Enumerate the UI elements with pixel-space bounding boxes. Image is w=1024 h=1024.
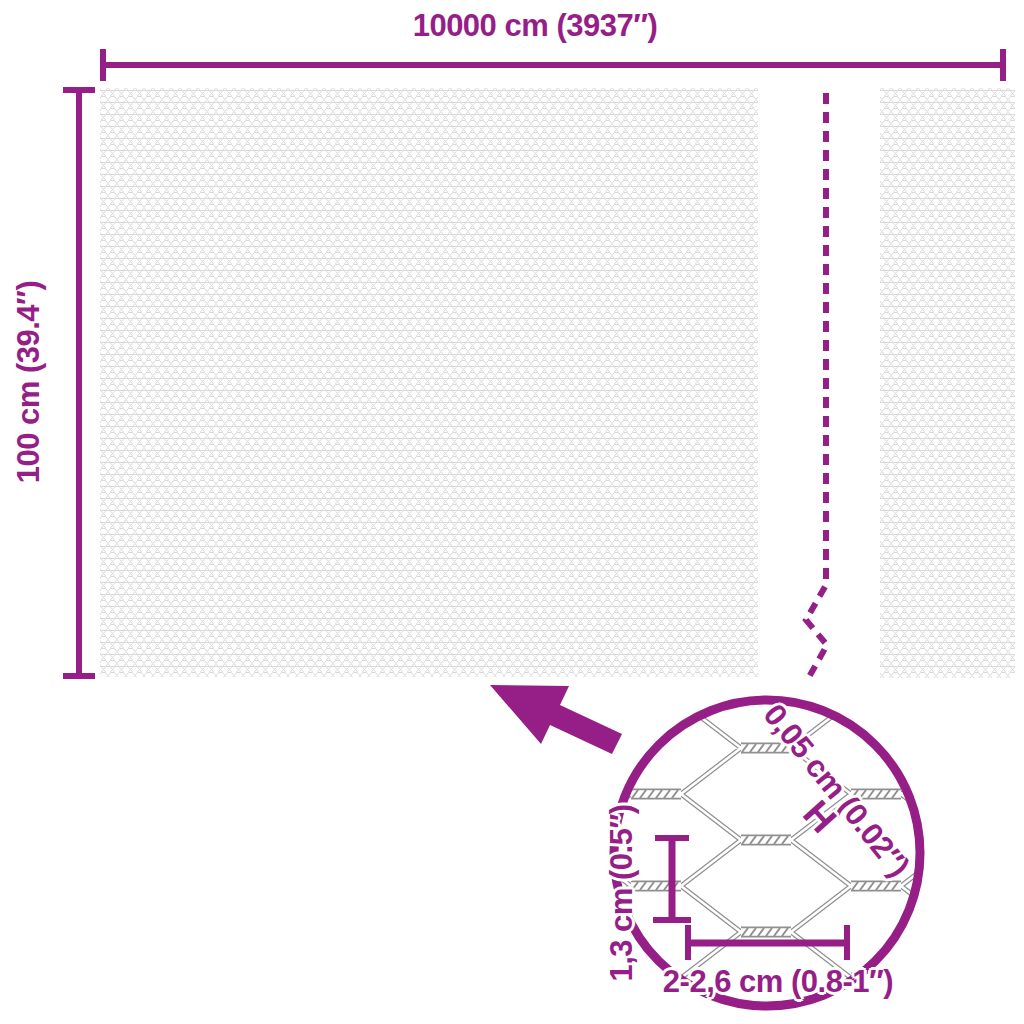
mesh-roll-continuation bbox=[880, 88, 1015, 678]
detail-circle bbox=[411, 652, 1024, 1006]
height-dimension-line bbox=[63, 90, 95, 676]
zoom-arrow bbox=[490, 685, 622, 754]
product-dimension-diagram: 10000 cm (3937″) 100 cm (39.4″) 0,05 cm … bbox=[0, 0, 1024, 1024]
break-line bbox=[806, 93, 827, 677]
height-dimension-label: 100 cm (39.4″) bbox=[12, 281, 46, 484]
width-dimension-label: 10000 cm (3937″) bbox=[413, 9, 658, 43]
mesh-roll-main bbox=[100, 88, 758, 677]
diagram-graphics bbox=[0, 0, 1024, 1024]
mesh-height-label: 1,3 cm (0.5″) bbox=[605, 804, 639, 981]
width-dimension-line bbox=[103, 49, 1003, 81]
mesh-width-label: 2-2,6 cm (0.8-1″) bbox=[663, 965, 893, 999]
